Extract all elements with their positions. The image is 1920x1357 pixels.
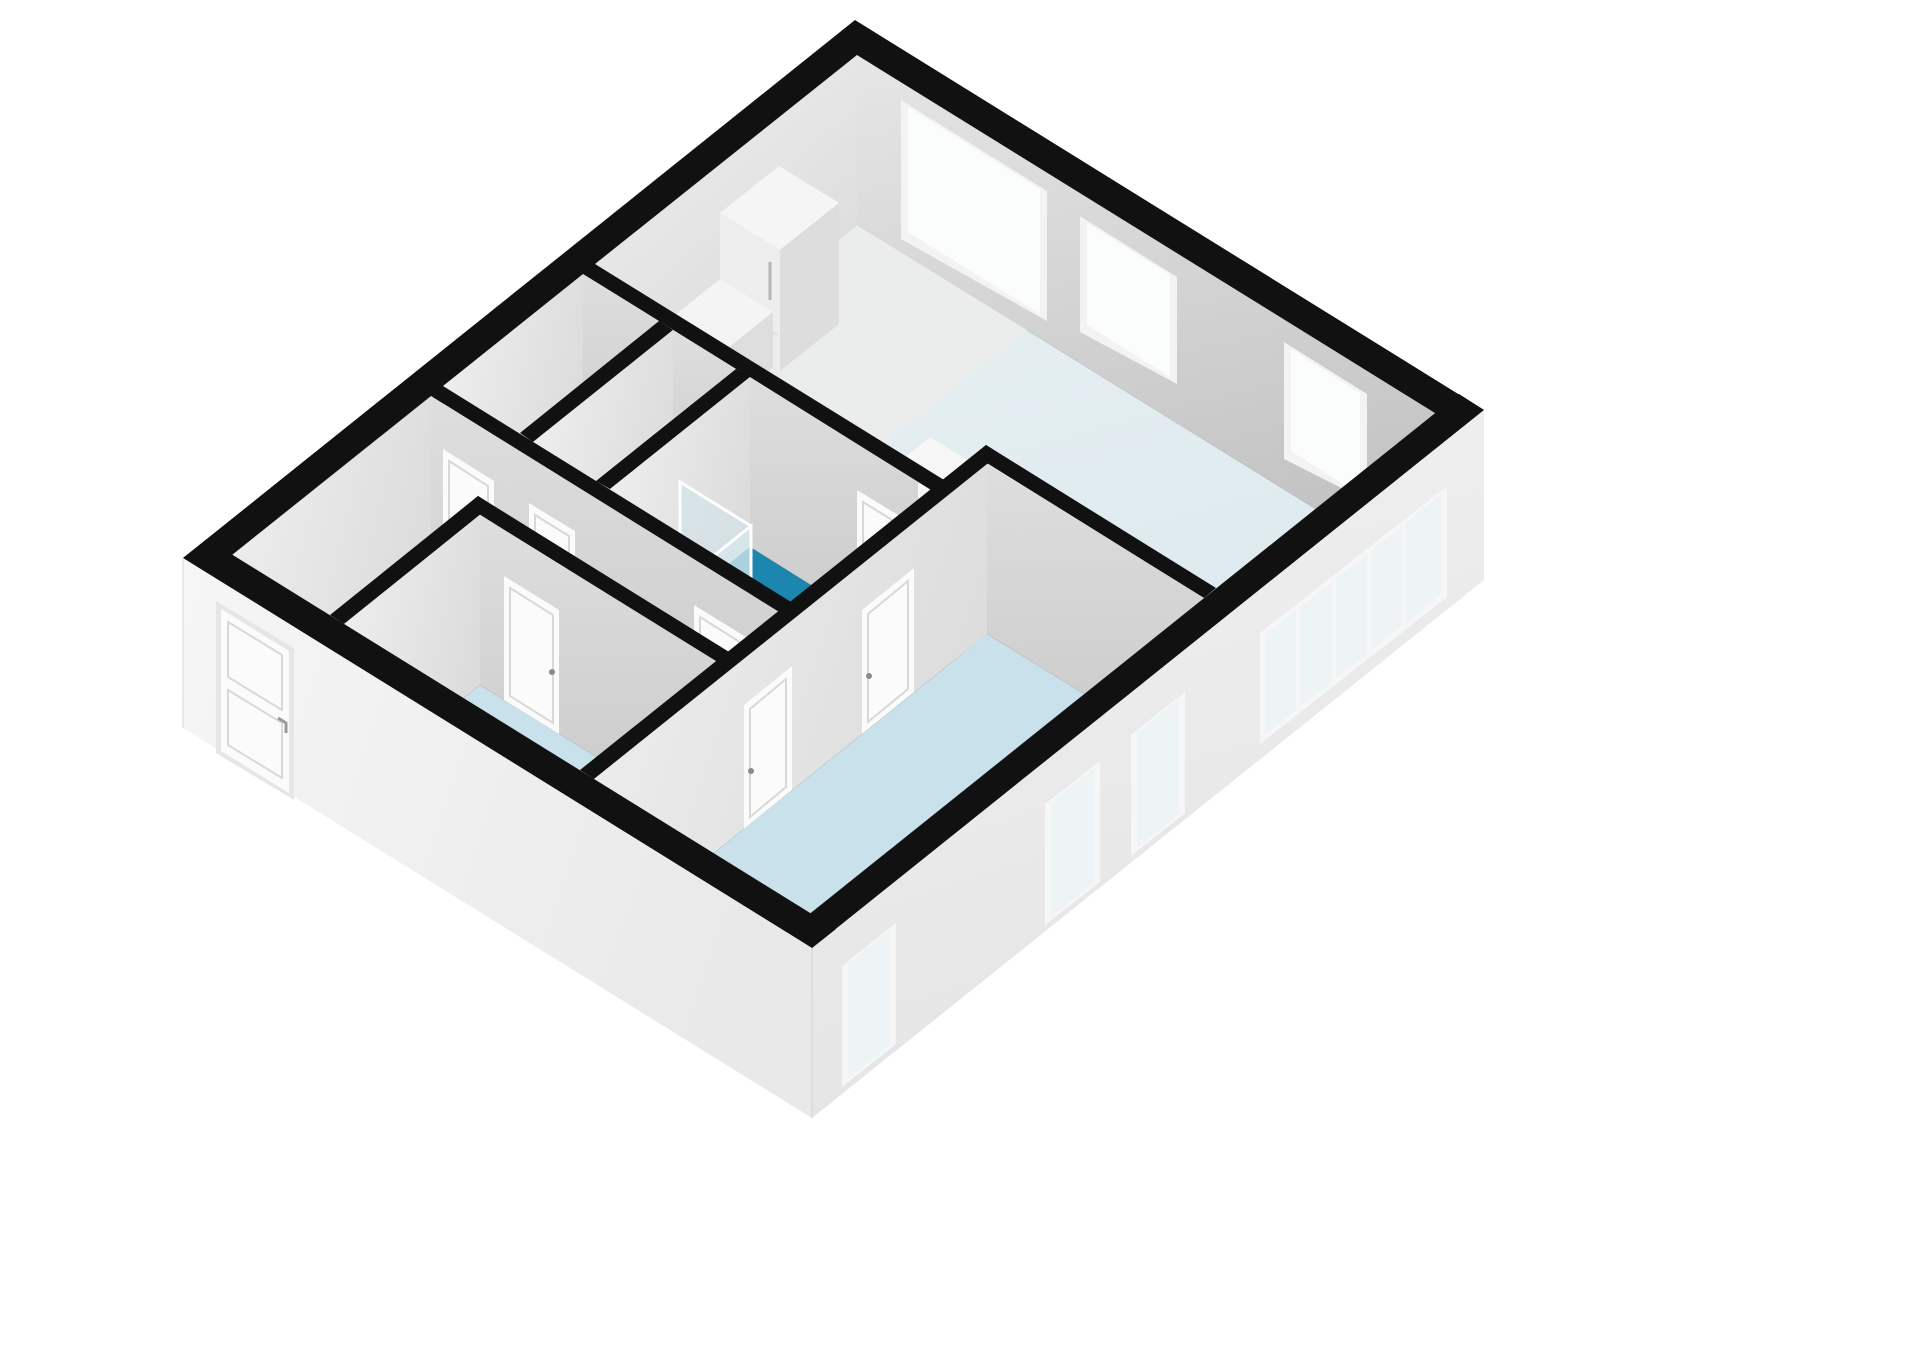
floorplan-stage — [0, 0, 1920, 1357]
door-handle — [748, 768, 754, 774]
floorplan-render — [0, 0, 1920, 1357]
door-handle — [549, 669, 555, 675]
door-handle — [866, 673, 872, 679]
